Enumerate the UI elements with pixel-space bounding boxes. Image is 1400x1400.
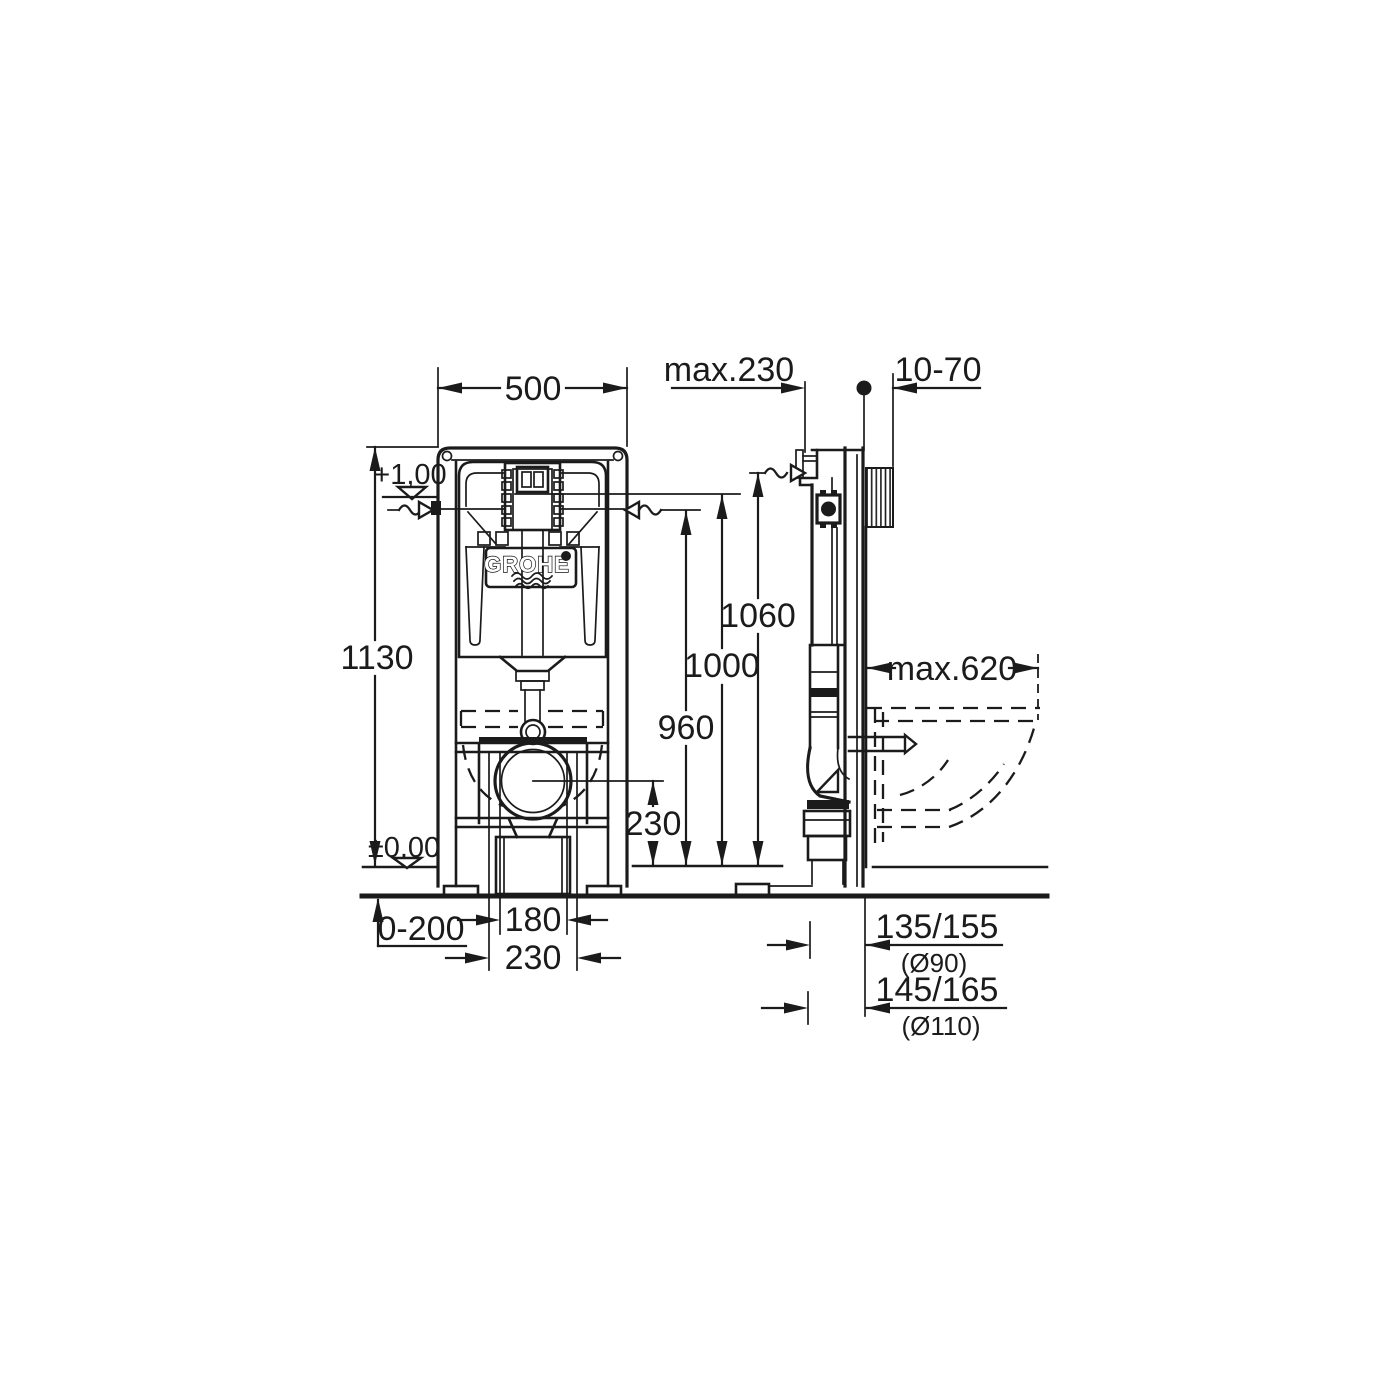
dim-label-0-200: 0-200 bbox=[378, 910, 465, 948]
dim-wall-reference bbox=[857, 381, 872, 451]
dim-label-max230: max.230 bbox=[664, 351, 794, 389]
level-marker-plus100: +1,00 bbox=[373, 459, 446, 499]
dim-drain-230: 230 bbox=[446, 939, 620, 977]
spud-tip bbox=[905, 735, 916, 753]
flush-plate-bracket bbox=[796, 450, 817, 485]
dim-label-180: 180 bbox=[505, 901, 562, 939]
technical-drawing-page: GROHE bbox=[0, 0, 1400, 1400]
reference-dot bbox=[857, 381, 872, 396]
dim-label-135-155: 135/155 bbox=[876, 908, 999, 946]
dim-label-10-70: 10-70 bbox=[895, 351, 982, 389]
finished-wall-section bbox=[866, 468, 893, 527]
dimensions: 500 max.230 10-70 1130 bbox=[340, 351, 1038, 1041]
dim-bowl-max620: max.620 bbox=[867, 650, 1038, 720]
level-marker-zero: ±0,00 bbox=[368, 832, 440, 868]
dim-label-dia110: (Ø110) bbox=[902, 1011, 981, 1041]
flush-level-squiggle bbox=[765, 469, 787, 478]
dim-bolts-180: 180 bbox=[458, 901, 607, 939]
water-inlet-connector bbox=[431, 501, 441, 515]
dim-label-145-165: 145/165 bbox=[876, 971, 999, 1009]
dim-drain-145-165: 145/165 (Ø110) bbox=[762, 971, 1006, 1041]
dim-label-1130: 1130 bbox=[340, 639, 413, 677]
registered-mark-dot bbox=[561, 551, 571, 561]
dim-width-500: 500 bbox=[438, 368, 627, 446]
front-view-cistern: GROHE bbox=[441, 462, 624, 721]
dim-outlet-230: 230 bbox=[625, 781, 682, 865]
dim-label-230-bottom: 230 bbox=[505, 939, 562, 977]
dim-label-1060: 1060 bbox=[720, 597, 796, 635]
installation-drawing: GROHE bbox=[0, 0, 1400, 1400]
cistern-profile bbox=[812, 478, 845, 645]
water-inlet-arrow-right bbox=[625, 502, 700, 518]
dim-label-960: 960 bbox=[658, 709, 715, 747]
flush-pipe-side bbox=[804, 645, 850, 884]
dim-depth-max230: max.230 bbox=[664, 351, 805, 452]
dim-floor-0-200: 0-200 bbox=[373, 898, 467, 948]
shaft-ticks bbox=[502, 470, 563, 526]
floor-lines bbox=[362, 866, 1047, 896]
dim-label-230-outlet: 230 bbox=[625, 805, 682, 843]
dim-label-500: 500 bbox=[505, 370, 562, 408]
drain-socket bbox=[496, 837, 570, 894]
grohe-logo-plate: GROHE bbox=[484, 548, 576, 588]
water-inlet-arrow-left bbox=[388, 502, 433, 518]
grohe-logo-text: GROHE bbox=[484, 552, 570, 577]
dim-wall-10-70: 10-70 bbox=[893, 351, 981, 466]
dim-label-max620: max.620 bbox=[887, 650, 1017, 688]
dim-label-1000: 1000 bbox=[684, 647, 760, 685]
wc-bowl-dashed-outline bbox=[867, 708, 1040, 846]
frame-screw-right bbox=[614, 452, 623, 461]
